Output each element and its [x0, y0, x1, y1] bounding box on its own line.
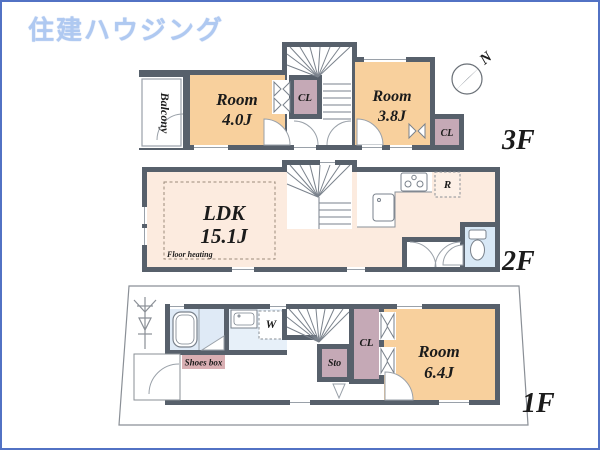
fridge-label: R: [443, 179, 451, 191]
ldk-size: 15.1J: [200, 224, 249, 248]
wall-2f-hall-stub: [402, 237, 407, 267]
room-1f-name: Room: [417, 342, 460, 361]
room-1f-size: 6.4J: [424, 363, 454, 382]
washbasin-icon: [231, 310, 257, 328]
stove-icon: [401, 173, 427, 191]
floor-heating-label: Floor heating: [166, 250, 213, 259]
washer-label: W: [266, 317, 278, 331]
ldk-name: LDK: [202, 201, 247, 225]
room-3f-b-size: 3.8J: [377, 108, 407, 125]
closet-3f-a-label: CL: [298, 92, 312, 104]
room-3f-a-size: 4.0J: [221, 110, 252, 129]
compass: N: [452, 48, 496, 94]
room-3f-a-name: Room: [215, 90, 258, 109]
storage-label: Sto: [328, 358, 341, 369]
room-3f-b-name: Room: [371, 88, 411, 105]
balcony-label: Balcony: [158, 92, 172, 134]
compass-needle-icon: [455, 66, 481, 91]
entrance-porch: [134, 354, 180, 400]
floorplan-page: 住建ハウジング: [0, 0, 600, 450]
floor-1f: W Shoes box Sto CL Room 6.4J 1F: [119, 286, 555, 425]
wall-1f-stair-left: [282, 309, 287, 339]
floorplan-drawing: Balcony Room 4.0J CL Room 3.8J CL 3F N: [2, 2, 600, 450]
wall-1f-washroom: [224, 309, 229, 350]
floor-2f: LDK 15.1J Floor heating R 2F: [142, 160, 535, 277]
closet-3f-b-label: CL: [441, 128, 454, 139]
kitchen-sink-icon: [373, 194, 394, 221]
wall-2f-hall: [402, 237, 465, 242]
wall-1f-wet-bottom: [165, 350, 287, 355]
bathtub-icon: [173, 312, 197, 347]
shoes-box-label: Shoes box: [185, 358, 223, 368]
closet-1f-label: CL: [359, 337, 373, 349]
floor-label-1f: 1F: [522, 388, 555, 419]
floor-3f: Balcony Room 4.0J CL Room 3.8J CL 3F: [139, 42, 535, 156]
floor-label-3f: 3F: [501, 125, 535, 156]
compass-north-label: N: [476, 48, 496, 69]
floor-label-2f: 2F: [501, 246, 535, 277]
toilet-icon: [469, 230, 486, 260]
